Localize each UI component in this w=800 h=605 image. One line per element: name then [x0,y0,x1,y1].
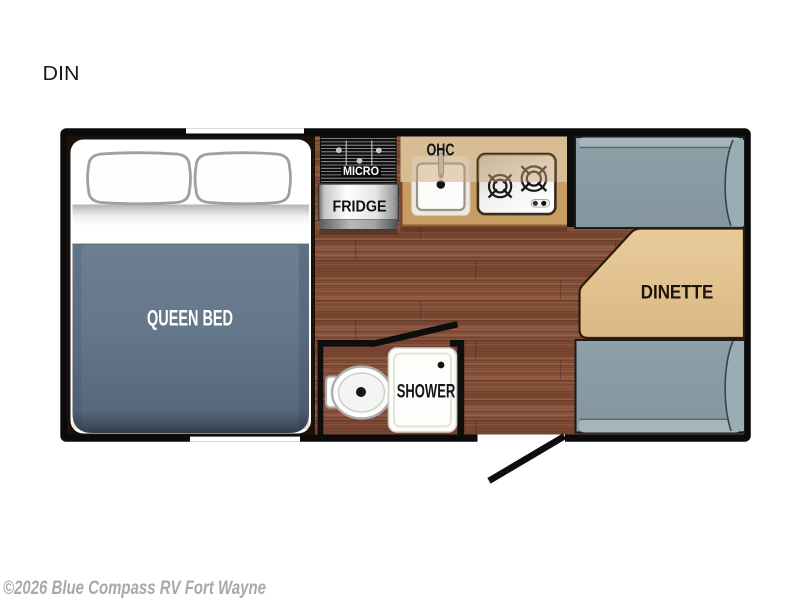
svg-text:QUEEN BED: QUEEN BED [147,305,233,330]
svg-text:©2026 Blue Compass RV Fort Way: ©2026 Blue Compass RV Fort Wayne [3,578,266,599]
svg-text:DIN: DIN [43,63,80,85]
svg-text:SHOWER: SHOWER [397,380,456,402]
svg-text:OHC: OHC [427,139,455,159]
svg-text:DINETTE: DINETTE [641,282,714,304]
svg-text:MICRO: MICRO [343,164,379,178]
svg-text:FRIDGE: FRIDGE [333,199,387,216]
